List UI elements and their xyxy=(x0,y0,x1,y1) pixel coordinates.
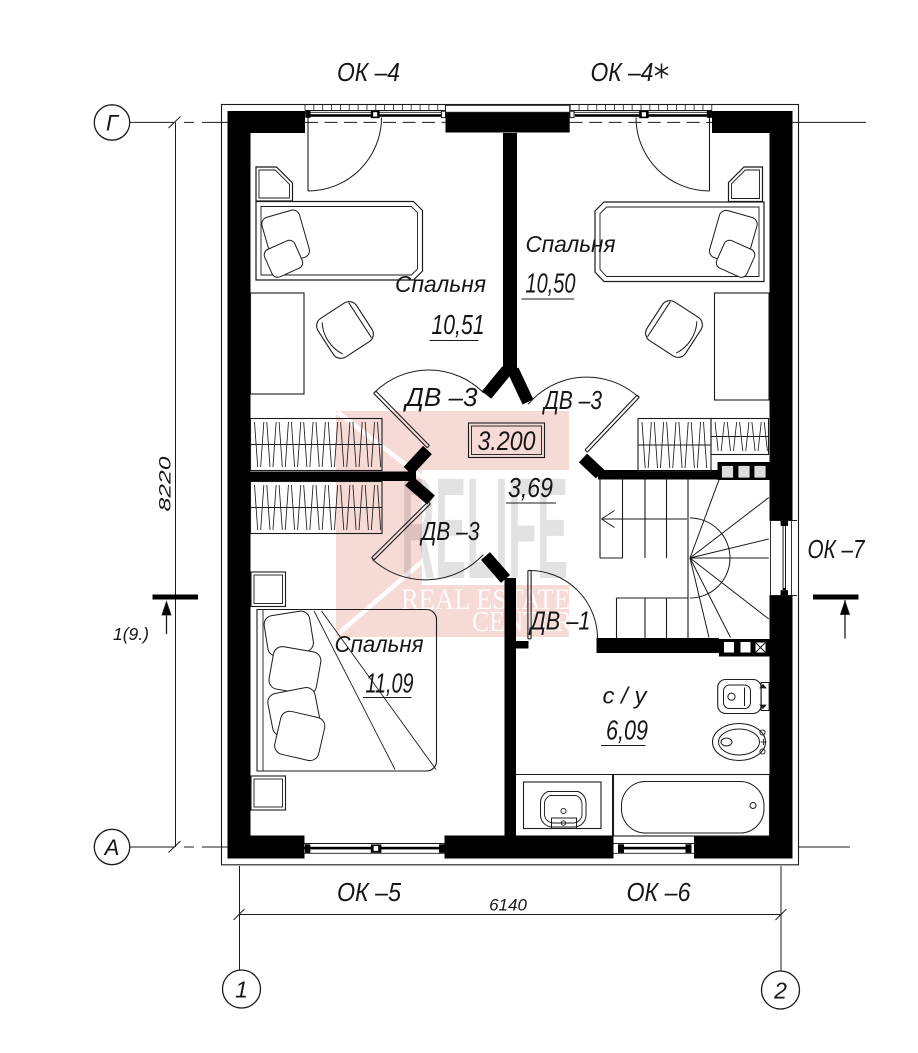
svg-text:ДВ –3: ДВ –3 xyxy=(419,516,480,546)
svg-text:8220: 8220 xyxy=(156,456,175,512)
svg-text:ОК –4: ОК –4 xyxy=(337,57,400,87)
svg-text:ОК –7: ОК –7 xyxy=(808,534,866,564)
svg-text:ОК –4: ОК –4 xyxy=(591,57,654,87)
svg-text:ДВ –3: ДВ –3 xyxy=(402,382,478,412)
svg-text:ОК –5: ОК –5 xyxy=(337,877,401,907)
svg-text:ДВ –1: ДВ –1 xyxy=(528,606,591,636)
svg-text:3,69: 3,69 xyxy=(508,472,553,503)
svg-text:3.200: 3.200 xyxy=(478,426,536,456)
svg-text:ДВ –3: ДВ –3 xyxy=(542,385,603,415)
svg-text:Спальня: Спальня xyxy=(335,631,424,657)
svg-text:1: 1 xyxy=(235,977,248,1003)
svg-text:10,50: 10,50 xyxy=(526,268,576,299)
svg-text:6140: 6140 xyxy=(489,896,527,915)
svg-text:11,09: 11,09 xyxy=(366,668,414,699)
svg-text:А: А xyxy=(103,835,120,860)
svg-text:10,51: 10,51 xyxy=(432,309,485,340)
svg-text:6,09: 6,09 xyxy=(606,715,648,746)
svg-text:1(9.): 1(9.) xyxy=(113,624,149,644)
svg-text:Г: Г xyxy=(106,111,120,136)
svg-text:с / у: с / у xyxy=(603,683,649,709)
svg-text:ОК –6: ОК –6 xyxy=(627,877,691,907)
svg-text:Спальня: Спальня xyxy=(395,271,486,297)
svg-text:2: 2 xyxy=(773,978,787,1004)
svg-text:Спальня: Спальня xyxy=(526,231,616,257)
